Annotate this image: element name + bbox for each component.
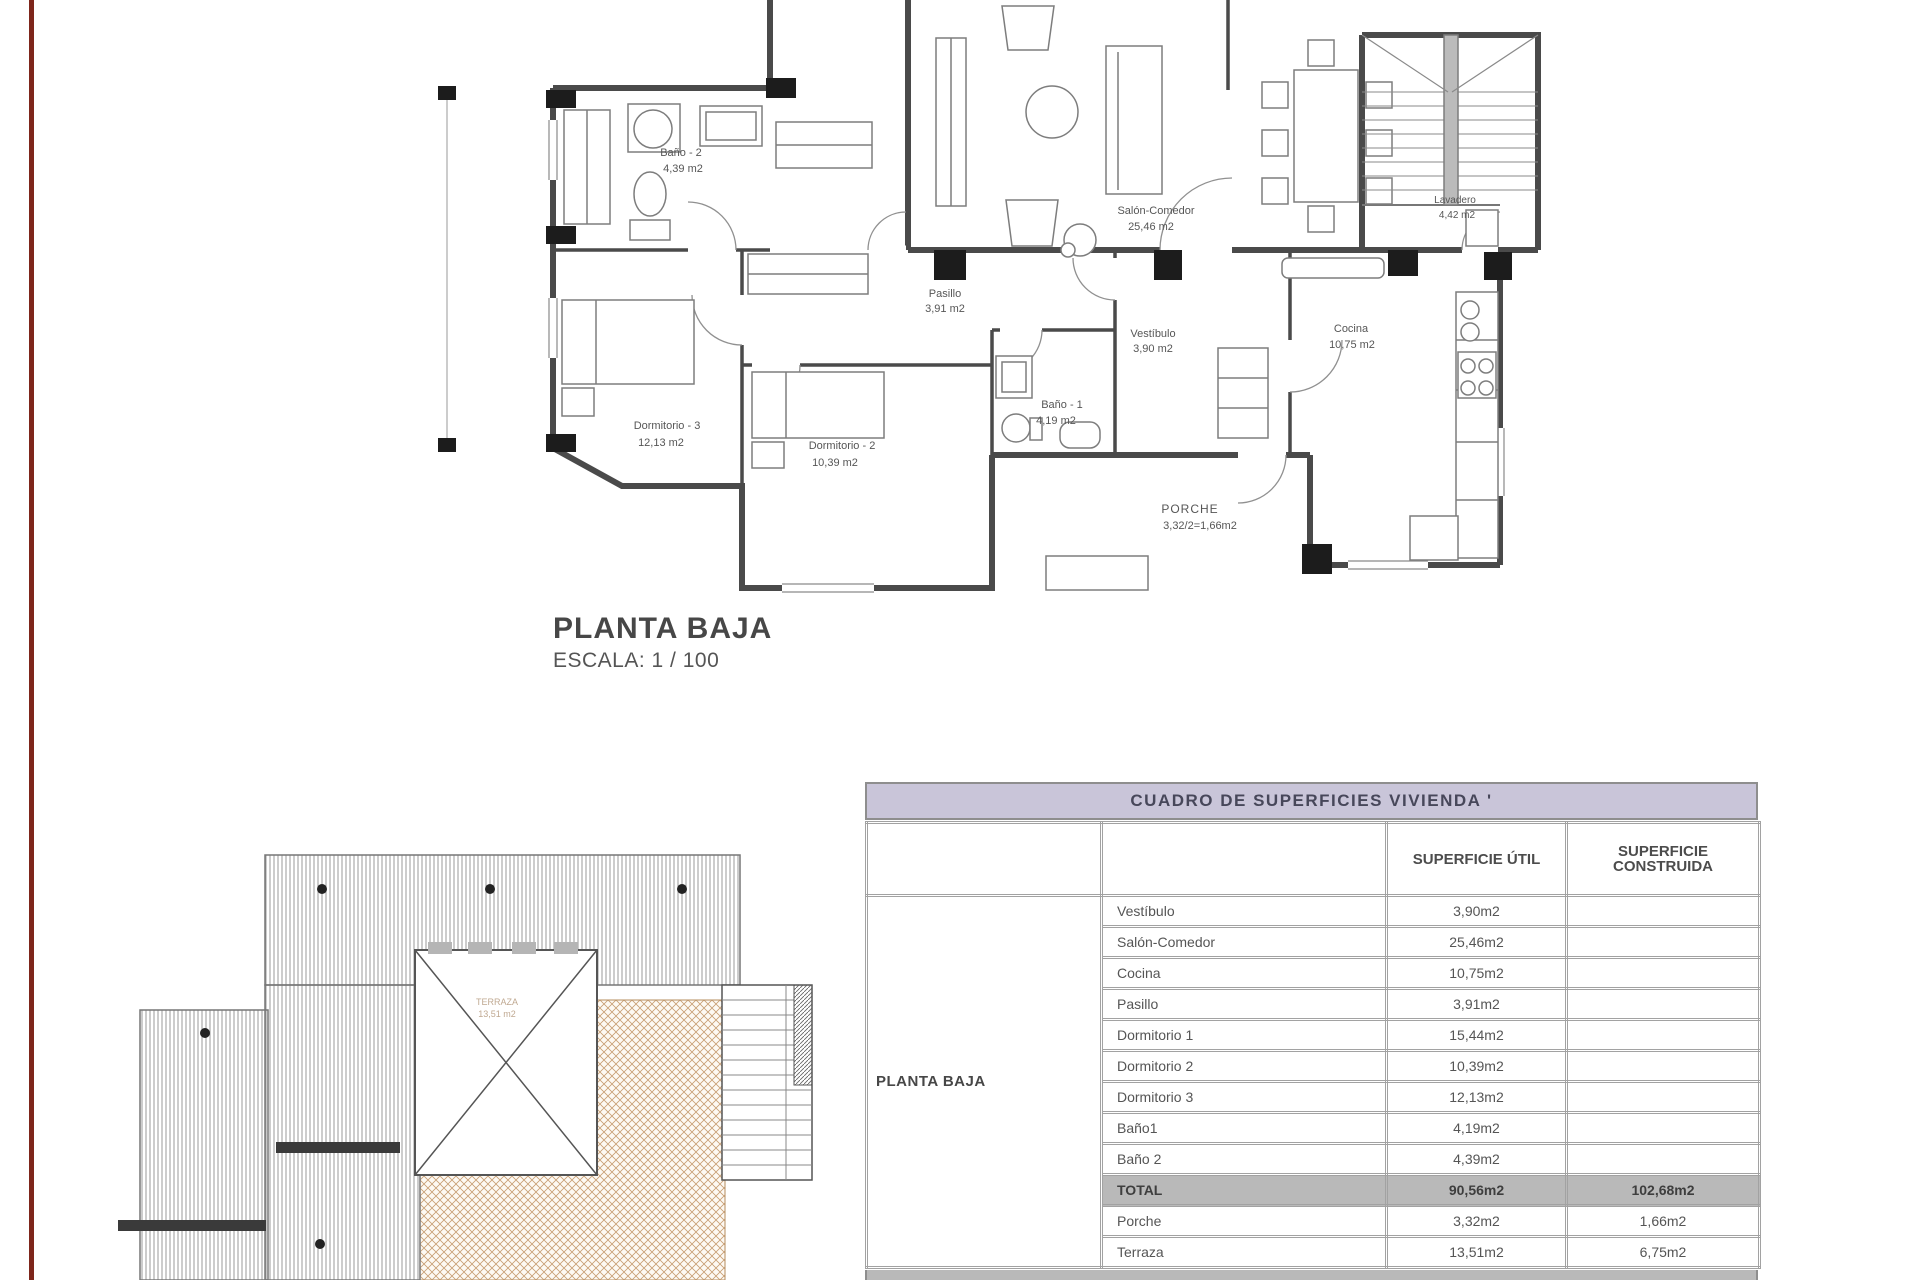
plan-title: PLANTA BAJA: [553, 612, 772, 646]
room-area: 3,90 m2: [1133, 343, 1173, 355]
row-util: 12,13m2: [1387, 1082, 1567, 1113]
next-section-strip: [865, 1270, 1758, 1280]
row-cons: 102,68m2: [1567, 1175, 1760, 1206]
wardrobes: [748, 122, 872, 294]
ground-floor-plan: Baño - 2 4,39 m2 Pasillo 3,91 m2 Salón-C…: [430, 0, 1555, 600]
row-cons: [1567, 896, 1760, 927]
room-area: 4,42 m2: [1439, 210, 1476, 221]
room-label: PORCHE: [1161, 502, 1218, 516]
row-cons: 1,66m2: [1567, 1206, 1760, 1237]
row-util: 10,39m2: [1387, 1051, 1567, 1082]
sheet-margin-line: [29, 0, 34, 1280]
room-area: 4,39 m2: [663, 163, 703, 175]
header-superficie-util: SUPERFICIE ÚTIL: [1387, 823, 1567, 896]
fixtures: [562, 6, 1538, 590]
row-cons: [1567, 927, 1760, 958]
porch-step: [1046, 556, 1148, 590]
roof-plan: TERRAZA 13,51 m2: [110, 840, 830, 1280]
row-cons: [1567, 1020, 1760, 1051]
room-area: 12,13 m2: [638, 437, 684, 449]
plan-scale: ESCALA: 1 / 100: [553, 649, 772, 673]
row-name: Dormitorio 2: [1102, 1051, 1387, 1082]
room-label: Baño - 1: [1041, 399, 1083, 411]
row-util: 4,39m2: [1387, 1144, 1567, 1175]
floor-plan-svg: Baño - 2 4,39 m2 Pasillo 3,91 m2 Salón-C…: [430, 0, 1555, 600]
room-label: Dormitorio - 2: [809, 440, 876, 452]
row-cons: [1567, 1082, 1760, 1113]
room-area: 10,75 m2: [1329, 339, 1375, 351]
row-name: Pasillo: [1102, 989, 1387, 1020]
row-name: Salón-Comedor: [1102, 927, 1387, 958]
room-label: Baño - 2: [660, 147, 702, 159]
row-cons: [1567, 989, 1760, 1020]
header-superficie-construida: SUPERFICIE CONSTRUIDA: [1567, 823, 1760, 896]
livingroom-furniture: [936, 6, 1162, 257]
roof-plan-svg: TERRAZA 13,51 m2: [110, 840, 830, 1280]
plan-caption: PLANTA BAJA ESCALA: 1 / 100: [553, 612, 772, 673]
row-util: 4,19m2: [1387, 1113, 1567, 1144]
section-label: PLANTA BAJA: [867, 896, 1102, 1268]
header-blank-1: [867, 823, 1102, 896]
surfaces-table-title: CUADRO DE SUPERFICIES VIVIENDA ': [865, 782, 1758, 820]
dining-set: [1262, 40, 1392, 232]
room-area: 3,91 m2: [925, 303, 965, 315]
surfaces-table: CUADRO DE SUPERFICIES VIVIENDA ' SUPERFI…: [865, 782, 1758, 1280]
row-cons: [1567, 1051, 1760, 1082]
room-area: 10,39 m2: [812, 457, 858, 469]
row-util: 15,44m2: [1387, 1020, 1567, 1051]
room-area: 3,32/2=1,66m2: [1163, 520, 1237, 532]
row-util: 3,32m2: [1387, 1206, 1567, 1237]
room-label: Vestíbulo: [1130, 328, 1175, 340]
svg-text:13,51 m2: 13,51 m2: [478, 1009, 516, 1019]
row-util: 25,46m2: [1387, 927, 1567, 958]
header-blank-2: [1102, 823, 1387, 896]
bedroom2-furniture: [752, 372, 884, 468]
svg-text:TERRAZA: TERRAZA: [476, 997, 518, 1007]
row-cons: [1567, 958, 1760, 989]
row-cons: 6,75m2: [1567, 1237, 1760, 1268]
row-util: 13,51m2: [1387, 1237, 1567, 1268]
table-row: PLANTA BAJA Vestíbulo 3,90m2: [867, 896, 1760, 927]
row-util: 3,91m2: [1387, 989, 1567, 1020]
row-cons: [1567, 1113, 1760, 1144]
room-label: Cocina: [1334, 323, 1369, 335]
header-row: SUPERFICIE ÚTIL SUPERFICIE CONSTRUIDA: [867, 823, 1760, 896]
row-name: Dormitorio 1: [1102, 1020, 1387, 1051]
row-util: 10,75m2: [1387, 958, 1567, 989]
room-area: 4,19 m2: [1036, 415, 1076, 427]
row-name: Baño 2: [1102, 1144, 1387, 1175]
row-name: TOTAL: [1102, 1175, 1387, 1206]
room-area: 25,46 m2: [1128, 221, 1174, 233]
surfaces-grid: SUPERFICIE ÚTIL SUPERFICIE CONSTRUIDA PL…: [865, 821, 1761, 1269]
row-util: 3,90m2: [1387, 896, 1567, 927]
roof-stair: [722, 985, 812, 1180]
room-label: Salón-Comedor: [1117, 205, 1194, 217]
room-label: Lavadero: [1434, 195, 1476, 206]
drawing-sheet: { "colors": { "margin_line": "#7e261b", …: [0, 0, 1920, 1280]
room-label: Pasillo: [929, 288, 961, 300]
skylight: [415, 942, 597, 1175]
row-cons: [1567, 1144, 1760, 1175]
row-name: Baño1: [1102, 1113, 1387, 1144]
row-util: 90,56m2: [1387, 1175, 1567, 1206]
row-name: Terraza: [1102, 1237, 1387, 1268]
room-label: Dormitorio - 3: [634, 420, 701, 432]
row-name: Dormitorio 3: [1102, 1082, 1387, 1113]
row-name: Porche: [1102, 1206, 1387, 1237]
bedroom3-furniture: [562, 300, 694, 416]
kitchen-fixtures: [1410, 292, 1498, 560]
row-name: Cocina: [1102, 958, 1387, 989]
row-name: Vestíbulo: [1102, 896, 1387, 927]
